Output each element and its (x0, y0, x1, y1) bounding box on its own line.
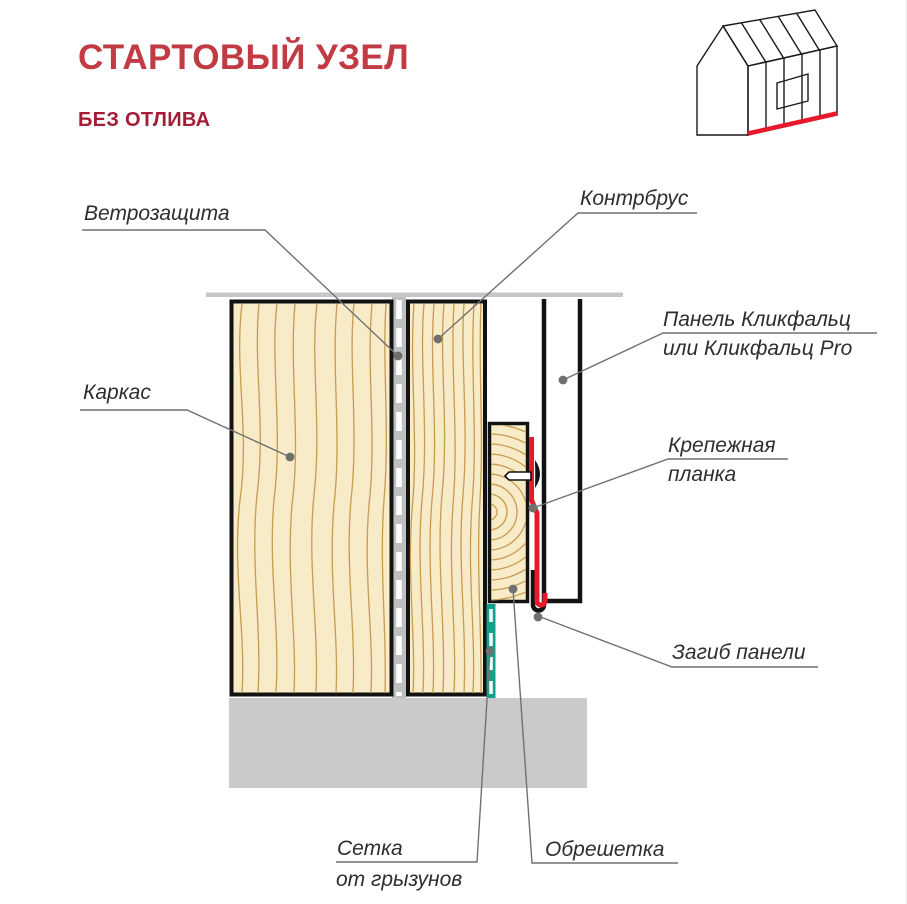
label-fastening-line2: планка (668, 463, 736, 486)
label-windbreak: Ветрозащита (84, 202, 230, 225)
leader-dot-rodent-mesh (486, 647, 495, 656)
construction-detail-diagram: Ветрозащита Контрбрус Каркас Панель Клик… (0, 0, 907, 904)
leader-dot-lathing (509, 585, 518, 594)
label-frame: Каркас (83, 381, 151, 404)
label-panel-line2: или Кликфальц Pro (663, 337, 853, 360)
leader-dot-panel (559, 376, 568, 385)
leader-dot-panel-fold (534, 613, 543, 622)
label-panel-fold: Загиб панели (672, 641, 806, 664)
leader-dot-fastening-strip (529, 504, 538, 513)
leader-dot-counter-batten (434, 335, 443, 344)
label-mesh-line1: Сетка (337, 837, 403, 860)
label-lathing: Обрешетка (545, 838, 664, 861)
label-counter-batten: Контрбрус (580, 187, 689, 210)
label-mesh-line2: от грызунов (336, 868, 462, 891)
label-fastening-line1: Крепежная (668, 434, 776, 457)
label-panel-line1: Панель Кликфальц (663, 308, 851, 331)
leader-fastening-strip (533, 459, 788, 508)
top-boundary-line (206, 293, 623, 298)
leader-dot-frame (286, 453, 295, 462)
screw-head (535, 460, 540, 488)
screw-shank (505, 472, 531, 480)
panel-outer-face (545, 299, 580, 601)
counter-batten-beam (408, 302, 485, 695)
leader-dot-windbreak (394, 352, 403, 361)
page: СТАРТОВЫЙ УЗЕЛ БЕЗ ОТЛИВА (0, 0, 907, 904)
foundation-base (229, 698, 587, 788)
frame-beam (232, 302, 392, 695)
